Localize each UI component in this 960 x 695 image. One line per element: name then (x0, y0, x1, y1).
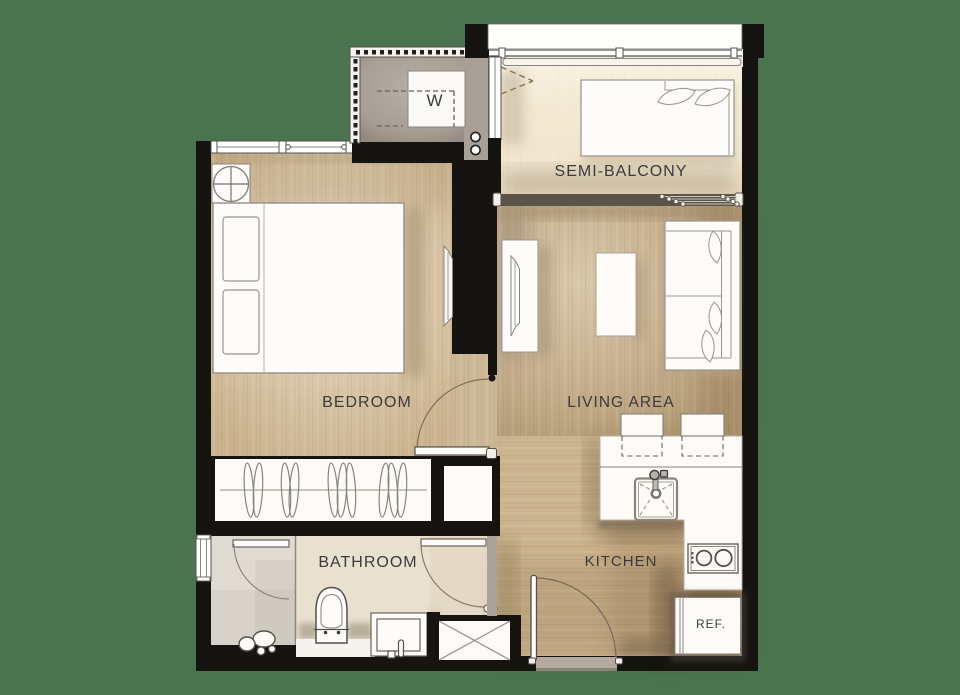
svg-text:W: W (426, 91, 443, 110)
svg-text:REF.: REF. (696, 617, 726, 631)
svg-text:BEDROOM: BEDROOM (322, 394, 412, 411)
svg-text:SEMI-BALCONY: SEMI-BALCONY (555, 163, 688, 180)
svg-text:KITCHEN: KITCHEN (585, 553, 658, 570)
svg-text:LIVING AREA: LIVING AREA (567, 394, 674, 411)
svg-text:BATHROOM: BATHROOM (318, 554, 417, 571)
